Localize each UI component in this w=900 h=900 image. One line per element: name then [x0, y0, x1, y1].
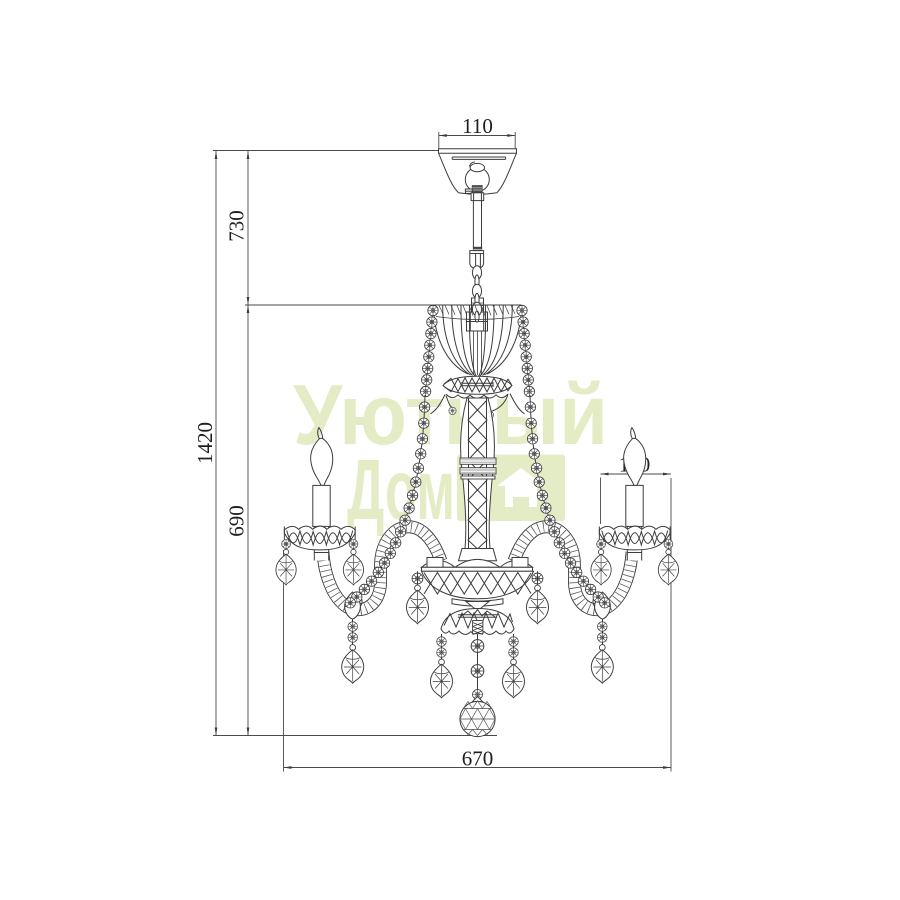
svg-text:110: 110 — [462, 114, 493, 138]
svg-text:670: 670 — [462, 747, 494, 771]
svg-text:690: 690 — [225, 505, 249, 537]
svg-text:730: 730 — [225, 210, 249, 242]
svg-text:1420: 1420 — [193, 422, 217, 464]
